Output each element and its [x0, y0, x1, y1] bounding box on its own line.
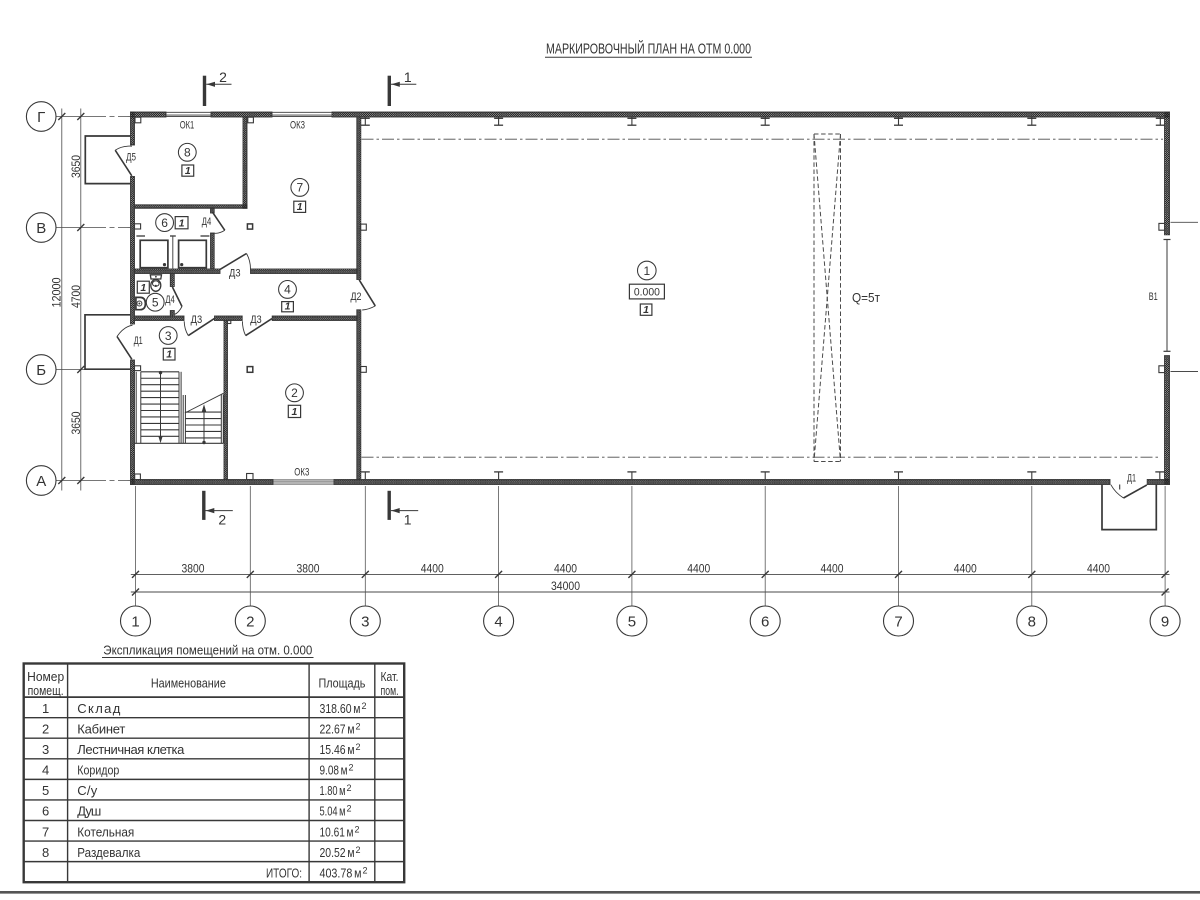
svg-text:318.60 м: 318.60 м — [320, 701, 361, 716]
svg-text:пом.: пом. — [381, 683, 399, 698]
svg-text:3: 3 — [165, 329, 172, 343]
svg-text:403.78 м: 403.78 м — [320, 865, 362, 880]
svg-text:2: 2 — [356, 742, 361, 752]
svg-text:5: 5 — [152, 296, 159, 310]
svg-text:Д1: Д1 — [1127, 473, 1136, 485]
svg-text:1: 1 — [185, 165, 191, 177]
svg-text:Г: Г — [37, 109, 45, 126]
svg-text:В1: В1 — [1149, 291, 1158, 303]
svg-text:20.52 м: 20.52 м — [320, 845, 355, 860]
svg-text:1: 1 — [140, 282, 146, 294]
svg-text:9: 9 — [1161, 613, 1169, 630]
svg-text:помещ.: помещ. — [28, 683, 64, 698]
svg-text:2: 2 — [362, 701, 367, 711]
svg-text:Кабинет: Кабинет — [77, 721, 125, 736]
svg-text:8: 8 — [1028, 613, 1036, 630]
svg-text:22.67 м: 22.67 м — [320, 721, 355, 736]
svg-text:6: 6 — [161, 216, 168, 230]
svg-text:Лестничная клетка: Лестничная клетка — [77, 742, 185, 757]
svg-text:9.08 м: 9.08 м — [320, 763, 348, 778]
svg-text:1: 1 — [166, 349, 172, 361]
svg-text:6: 6 — [42, 804, 49, 819]
svg-text:Котельная: Котельная — [77, 824, 134, 839]
svg-text:10.61 м: 10.61 м — [320, 824, 354, 839]
svg-text:5.04 м: 5.04 м — [320, 804, 346, 819]
svg-text:Склад: Склад — [77, 701, 120, 716]
svg-text:2: 2 — [356, 845, 361, 855]
svg-text:3800: 3800 — [182, 563, 205, 575]
svg-text:ОК3: ОК3 — [294, 467, 309, 479]
svg-text:6: 6 — [761, 613, 769, 630]
svg-text:2: 2 — [218, 512, 226, 528]
svg-text:Д5: Д5 — [126, 152, 136, 164]
svg-text:МАРКИРОВОЧНЫЙ ПЛАН НА ОТМ 0.00: МАРКИРОВОЧНЫЙ ПЛАН НА ОТМ 0.000 — [546, 40, 751, 58]
svg-text:3: 3 — [361, 613, 369, 630]
svg-text:Экспликация помещений на отм.: Экспликация помещений на отм. 0.000 — [103, 643, 312, 657]
svg-text:Д3: Д3 — [229, 268, 241, 280]
svg-text:1: 1 — [404, 512, 412, 528]
svg-text:2: 2 — [349, 763, 354, 773]
svg-text:1: 1 — [643, 304, 649, 316]
svg-text:Кат.: Кат. — [381, 669, 399, 684]
svg-text:1: 1 — [131, 613, 139, 630]
svg-text:1: 1 — [643, 264, 650, 278]
svg-text:Раздевалка: Раздевалка — [77, 845, 141, 860]
svg-text:4400: 4400 — [1087, 563, 1110, 575]
svg-text:1: 1 — [42, 701, 49, 716]
svg-text:Д2: Д2 — [351, 291, 362, 303]
svg-text:3: 3 — [42, 742, 49, 757]
svg-text:5: 5 — [42, 783, 49, 798]
svg-text:2: 2 — [363, 865, 368, 875]
svg-text:4: 4 — [284, 283, 291, 297]
svg-text:4: 4 — [494, 613, 502, 630]
svg-text:4400: 4400 — [954, 563, 977, 575]
svg-text:5: 5 — [628, 613, 636, 630]
svg-text:Д3: Д3 — [191, 314, 203, 326]
svg-text:1: 1 — [292, 406, 298, 418]
svg-text:В: В — [36, 220, 46, 237]
svg-text:2: 2 — [42, 721, 49, 736]
svg-text:Q=5т: Q=5т — [852, 291, 880, 305]
svg-text:Д1: Д1 — [134, 335, 143, 347]
svg-text:3650: 3650 — [71, 412, 83, 435]
svg-text:7: 7 — [296, 181, 303, 195]
svg-text:1: 1 — [285, 301, 291, 313]
svg-text:8: 8 — [42, 845, 49, 860]
svg-text:ИТОГО:: ИТОГО: — [266, 865, 302, 880]
svg-text:Площадь: Площадь — [318, 676, 365, 691]
svg-text:7: 7 — [894, 613, 902, 630]
svg-text:С/у: С/у — [77, 783, 98, 798]
svg-text:4400: 4400 — [421, 563, 444, 575]
svg-text:1: 1 — [179, 218, 185, 230]
svg-text:Номер: Номер — [27, 669, 64, 684]
svg-text:2: 2 — [291, 386, 298, 400]
svg-text:ОК3: ОК3 — [290, 119, 305, 131]
svg-text:8: 8 — [184, 146, 191, 160]
svg-text:4400: 4400 — [687, 563, 710, 575]
svg-text:2: 2 — [219, 69, 227, 85]
svg-text:А: А — [36, 473, 46, 490]
svg-text:ОК1: ОК1 — [180, 119, 195, 131]
svg-text:4400: 4400 — [554, 563, 577, 575]
svg-text:1: 1 — [404, 69, 412, 85]
svg-text:Д4: Д4 — [202, 216, 212, 228]
svg-text:3800: 3800 — [297, 563, 320, 575]
svg-text:1.80 м: 1.80 м — [320, 783, 346, 798]
svg-text:Д3: Д3 — [250, 314, 262, 326]
svg-text:4700: 4700 — [71, 285, 83, 308]
svg-text:4400: 4400 — [821, 563, 844, 575]
svg-text:15.46 м: 15.46 м — [320, 742, 355, 757]
svg-text:2: 2 — [347, 804, 352, 814]
svg-text:12000: 12000 — [51, 278, 63, 308]
svg-text:0.000: 0.000 — [634, 286, 660, 298]
svg-text:Наименование: Наименование — [151, 676, 226, 691]
svg-text:34000: 34000 — [551, 581, 580, 593]
svg-text:Б: Б — [36, 362, 46, 379]
svg-text:3650: 3650 — [71, 155, 83, 178]
svg-text:7: 7 — [42, 824, 49, 839]
svg-text:Душ: Душ — [77, 804, 101, 819]
svg-text:2: 2 — [347, 783, 352, 793]
svg-text:Коридор: Коридор — [77, 763, 119, 778]
svg-text:2: 2 — [356, 721, 361, 731]
svg-text:2: 2 — [355, 824, 360, 834]
svg-text:Д4: Д4 — [165, 294, 175, 306]
svg-text:1: 1 — [297, 201, 303, 213]
svg-text:2: 2 — [246, 613, 254, 630]
svg-text:4: 4 — [42, 763, 49, 778]
